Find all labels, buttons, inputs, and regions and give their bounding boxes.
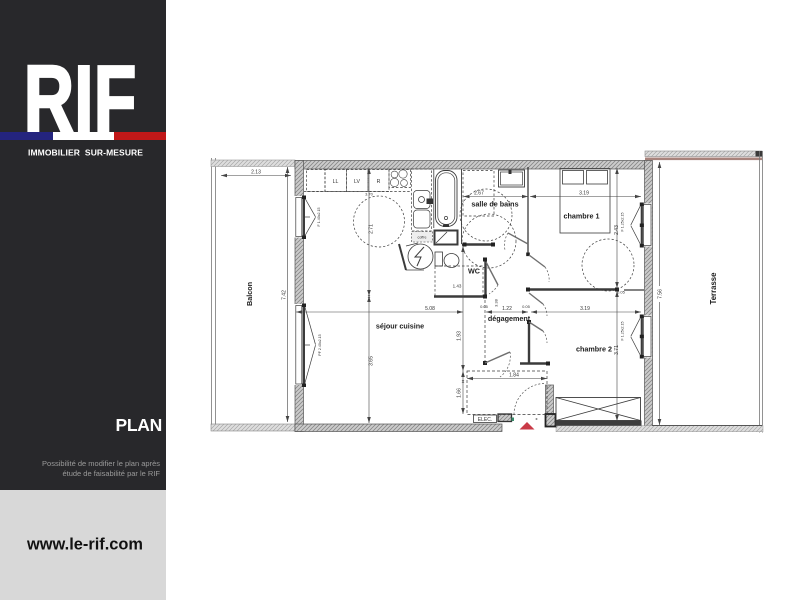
- svg-text:3.65: 3.65: [369, 356, 375, 366]
- svg-text:dégagement: dégagement: [488, 314, 531, 323]
- svg-text:1.66: 1.66: [457, 388, 463, 398]
- svg-text:Terrasse: Terrasse: [709, 272, 718, 305]
- svg-text:x: x: [462, 379, 465, 385]
- svg-text:2.71: 2.71: [369, 224, 375, 234]
- svg-text:WC: WC: [468, 267, 480, 276]
- svg-text:0.05: 0.05: [522, 304, 531, 309]
- svg-text:salle de bains: salle de bains: [471, 200, 518, 209]
- svg-text:2.67: 2.67: [474, 191, 484, 197]
- svg-text:F 1.40x2.15: F 1.40x2.15: [317, 208, 321, 227]
- svg-text:x: x: [368, 294, 371, 300]
- svg-text:coffre: coffre: [418, 236, 427, 240]
- svg-text:F 1.25x2.15: F 1.25x2.15: [621, 213, 625, 232]
- svg-text:PF 2.40x2.15: PF 2.40x2.15: [318, 334, 322, 355]
- svg-text:F 1.25x2.15: F 1.25x2.15: [621, 322, 625, 341]
- svg-text:chambre 2: chambre 2: [576, 345, 612, 354]
- svg-text:1.43: 1.43: [453, 284, 462, 289]
- svg-text:3.19: 3.19: [580, 306, 590, 312]
- svg-text:séjour cuisine: séjour cuisine: [376, 322, 424, 331]
- svg-text:3.38: 3.38: [494, 298, 499, 307]
- svg-text:étude de faisabilité par le RI: étude de faisabilité par le RIF: [62, 469, 160, 478]
- svg-text:2.13: 2.13: [251, 170, 261, 176]
- svg-text:2.43: 2.43: [614, 225, 620, 235]
- svg-text:PLAN: PLAN: [116, 415, 162, 435]
- svg-text:ELEC.: ELEC.: [478, 417, 492, 423]
- svg-text:5.08: 5.08: [425, 306, 435, 312]
- svg-text:0.05: 0.05: [480, 304, 489, 309]
- svg-text:3.70: 3.70: [365, 192, 374, 197]
- svg-text:3.71: 3.71: [614, 345, 620, 355]
- svg-text:1.84: 1.84: [509, 373, 519, 379]
- svg-text:3.19: 3.19: [579, 191, 589, 197]
- svg-text:IMMOBILIER SUR-MESURE: IMMOBILIER SUR-MESURE: [28, 148, 143, 158]
- svg-text:LV: LV: [354, 179, 360, 185]
- svg-text:7.56: 7.56: [657, 289, 663, 299]
- svg-text:LL: LL: [333, 179, 339, 185]
- svg-text:Balcon: Balcon: [245, 282, 254, 306]
- svg-text:1.22: 1.22: [502, 306, 512, 312]
- svg-text:1.93: 1.93: [457, 331, 463, 341]
- svg-text:0.05: 0.05: [617, 290, 626, 295]
- svg-text:www.le-rif.com: www.le-rif.com: [26, 536, 143, 554]
- svg-text:chambre 1: chambre 1: [564, 212, 600, 221]
- svg-text:Possibilité de modifier le pla: Possibilité de modifier le plan après: [42, 459, 160, 468]
- svg-text:R: R: [377, 179, 381, 185]
- svg-text:7.42: 7.42: [282, 290, 288, 300]
